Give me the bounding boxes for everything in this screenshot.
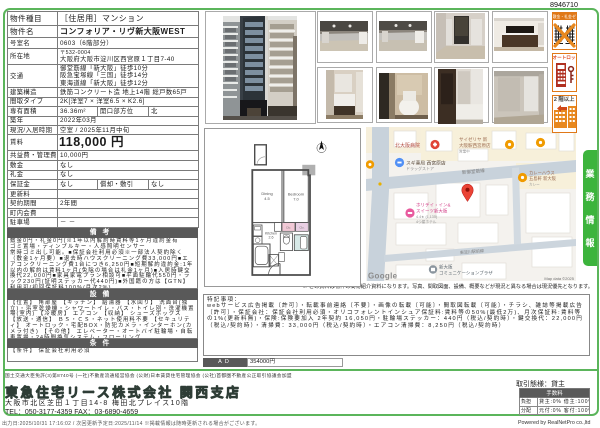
svg-text:カレー: カレー <box>529 182 540 187</box>
svg-text:ドラッグストア: ドラッグストア <box>406 165 434 171</box>
svg-text:4つ星ホテル: 4つ星ホテル <box>416 219 437 224</box>
svg-text:コミュニケーションプラザ: コミュニケーションプラザ <box>439 270 493 277</box>
svg-text:Clo.: Clo. <box>286 226 292 230</box>
svg-text:Google: Google <box>368 272 398 281</box>
svg-text:ホリデイ・イン&: ホリデイ・イン& <box>416 202 451 209</box>
svg-text:4.4★ (1,135): 4.4★ (1,135) <box>416 215 437 219</box>
svg-text:五島軒 新大阪: 五島軒 新大阪 <box>529 175 557 182</box>
svg-text:大阪駅西宮原店: 大阪駅西宮原店 <box>459 142 491 149</box>
svg-text:スイーツ新大阪: スイーツ新大阪 <box>416 208 448 215</box>
svg-text:サイゼリヤ 新: サイゼリヤ 新 <box>459 136 488 143</box>
svg-text:営業中: 営業中 <box>459 149 470 154</box>
svg-text:7.0: 7.0 <box>293 197 299 202</box>
svg-text:北大阪病院: 北大阪病院 <box>395 142 420 149</box>
svg-text:Map data ©2025: Map data ©2025 <box>544 276 574 281</box>
svg-text:Clo.: Clo. <box>299 226 305 230</box>
svg-text:新大阪: 新大阪 <box>439 264 453 271</box>
svg-text:2.6: 2.6 <box>269 236 274 240</box>
svg-text:4.5: 4.5 <box>264 196 270 201</box>
